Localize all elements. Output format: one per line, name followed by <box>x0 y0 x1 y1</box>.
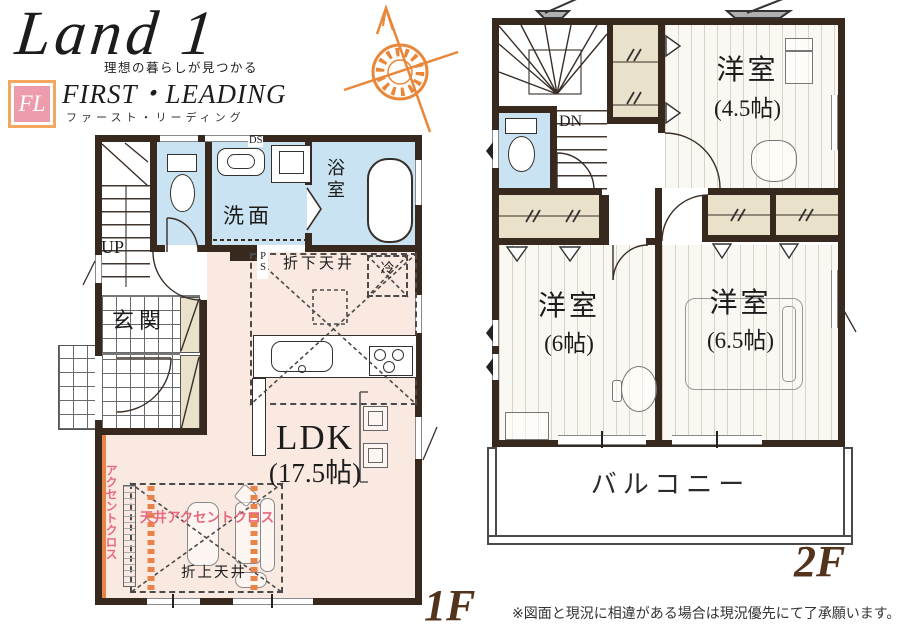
room-size: (4.5帖) <box>714 97 781 120</box>
room-size: (6.5帖) <box>707 329 774 352</box>
room-a-label: 洋室 (4.5帖) <box>675 57 820 120</box>
raised-ceiling-label: 折上天井 <box>168 566 260 581</box>
floorplan-flyer: Land 1 理想の暮らしが見つかる FL FIRST・LEADING ファース… <box>0 0 900 635</box>
floorplan-2f: DN 洋室 (4.5帖) 洋室 (6帖) 洋室 (6.5帖) バルコニー <box>485 10 860 555</box>
accent-cloth-label: アクセントクロス <box>105 464 117 596</box>
brand-logo-box: FL <box>8 80 56 128</box>
room-name: 洋室 <box>716 57 778 85</box>
floor2-label: 2F <box>794 536 845 587</box>
floor1-label: 1F <box>424 580 475 631</box>
room-name: 洋室 <box>709 290 771 318</box>
bathroom-label: 浴室 <box>326 158 344 228</box>
stairs-up-label: UP <box>101 238 124 256</box>
ceiling-accent-label: 天井アクセントクロス <box>132 511 282 525</box>
brand-tagline: 理想の暮らしが見つかる <box>104 62 258 75</box>
duct-space-label: DS <box>248 136 263 147</box>
fridge-label: 冷 <box>367 263 408 277</box>
brand-monogram: FL <box>14 86 50 122</box>
pipe-space-label: PS <box>257 251 268 279</box>
brand-script: Land 1 <box>13 2 220 65</box>
skylight-marks <box>537 0 793 18</box>
disclaimer: ※図面と現況に相違がある場合は現況優先にて了承願います。 <box>512 603 900 623</box>
ldk-name: LDK <box>250 420 380 455</box>
floorplan-1f: UP DS PS 洗面 浴室 玄関 折下天井 冷 LDK (17.5帖) 天井ア… <box>55 130 440 612</box>
room-name: 洋室 <box>538 293 600 321</box>
room-size: (6帖) <box>544 332 594 355</box>
washroom-label: 洗面 <box>223 206 273 227</box>
stairs-down-label: DN <box>559 114 582 130</box>
dropped-ceiling-label: 折下天井 <box>283 257 355 272</box>
room-c-label: 洋室 (6.5帖) <box>668 290 813 352</box>
balcony-label: バルコニー <box>573 472 768 498</box>
brand-kana: ファースト・リーディング <box>66 113 245 124</box>
room-b-label: 洋室 (6帖) <box>503 293 635 355</box>
compass-icon <box>330 0 470 145</box>
entrance-label: 玄関 <box>112 310 166 332</box>
brand-name: FIRST・LEADING <box>62 81 287 108</box>
ldk-size: (17.5帖) <box>240 460 390 487</box>
